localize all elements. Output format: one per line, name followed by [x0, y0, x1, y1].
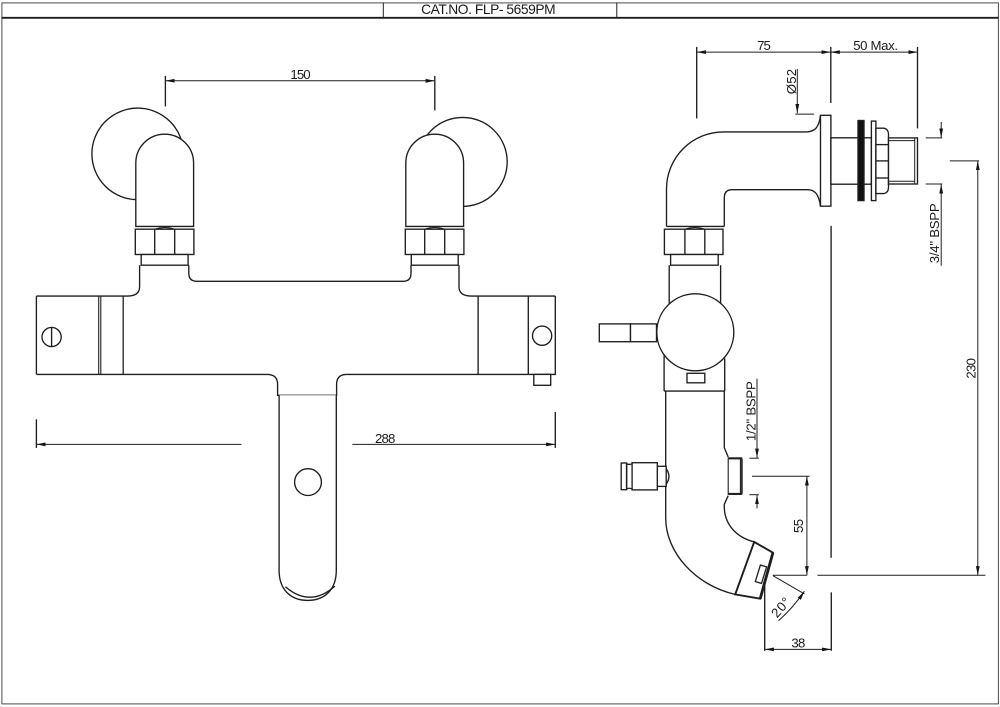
svg-text:230: 230 [963, 358, 978, 379]
svg-text:20°: 20° [768, 594, 793, 620]
svg-text:75: 75 [757, 38, 771, 53]
svg-text:38: 38 [791, 636, 805, 651]
svg-text:CAT.NO. FLP- 5659PM: CAT.NO. FLP- 5659PM [421, 2, 556, 17]
svg-text:50 Max.: 50 Max. [853, 38, 898, 53]
svg-text:288: 288 [375, 431, 395, 446]
svg-text:55: 55 [791, 519, 806, 533]
svg-text:150: 150 [290, 67, 310, 82]
svg-text:1/2" BSPP: 1/2" BSPP [743, 381, 758, 441]
svg-text:Ø52: Ø52 [784, 69, 799, 94]
svg-text:3/4" BSPP: 3/4" BSPP [927, 203, 942, 263]
